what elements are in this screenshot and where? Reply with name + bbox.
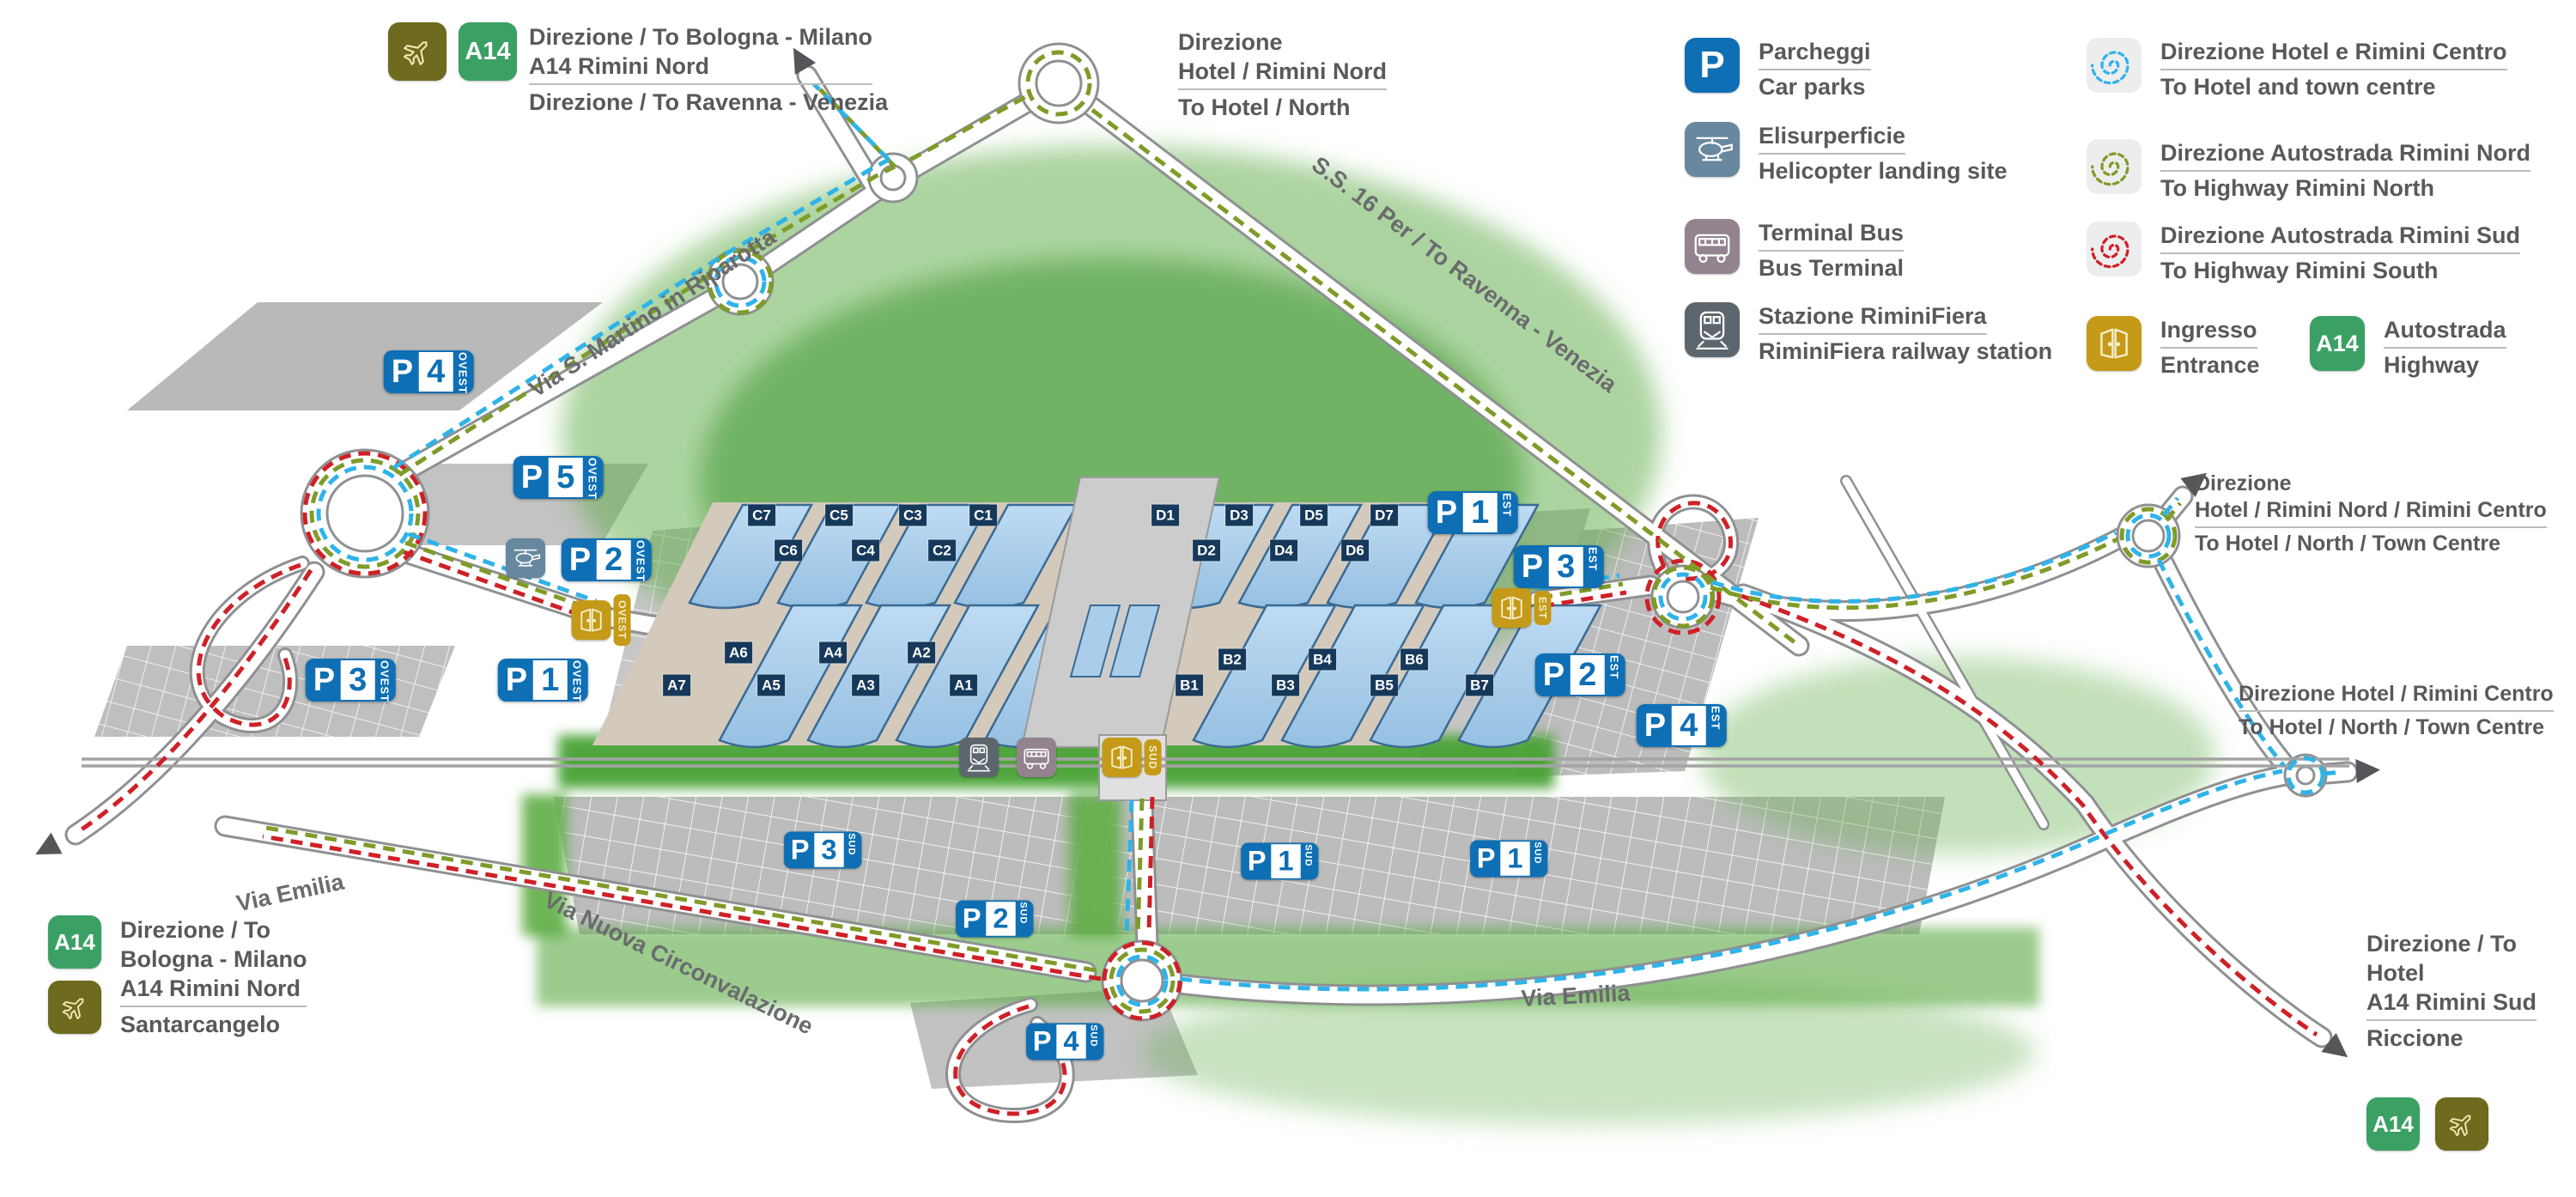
legend-label-en: Entrance <box>2160 351 2260 380</box>
legend-row-autostrada: A14 Autostrada Highway <box>2310 316 2506 380</box>
p-area: EST <box>1607 655 1620 695</box>
p-area: OVEST <box>456 352 469 392</box>
p-letter: P <box>386 355 419 388</box>
legend-row-autostrada-sud: Direzione Autostrada Rimini Sud To Highw… <box>2087 222 2520 285</box>
p-letter: P <box>1516 550 1549 583</box>
railway-station-marker-icon <box>959 738 999 777</box>
p-area: OVEST <box>570 660 583 700</box>
dir-line: Hotel / Rimini Nord / Rimini Centro <box>2195 497 2547 528</box>
dir-block-right-upper: Direzione Hotel / Rimini Nord / Rimini C… <box>2195 471 2547 557</box>
p-letter: P <box>957 905 987 933</box>
hall-label: D2 <box>1193 540 1220 562</box>
arrow-hotel-centro-icon <box>2355 758 2380 783</box>
legend-label-en: To Highway Rimini South <box>2160 257 2520 285</box>
helipad-marker-icon <box>506 538 545 578</box>
p-area: SUD <box>847 833 858 867</box>
dir-top-left-text: Direzione / To Bologna - Milano A14 Rimi… <box>529 22 888 117</box>
hall-label: D6 <box>1341 540 1369 562</box>
hall-label: B2 <box>1218 649 1246 671</box>
p-number: 5 <box>549 458 582 497</box>
airport-icon <box>388 22 447 81</box>
legend-row-elisurperficie: Elisurperficie Helicopter landing site <box>1685 122 2008 185</box>
p-area: EST <box>1500 493 1513 532</box>
legend-label-it: Direzione Autostrada Rimini Sud <box>2160 222 2520 254</box>
legend-label-it: Elisurperficie <box>1759 122 1905 155</box>
parking-sign-p3-ovest: P 3 OVEST <box>306 659 396 702</box>
hall-label: C6 <box>775 540 802 562</box>
dir-line: To Hotel / North / Town Centre <box>2239 714 2554 741</box>
p-letter: P <box>1430 496 1463 529</box>
p-number: 3 <box>341 660 374 700</box>
p-letter: P <box>500 664 533 696</box>
road-label-via-emilia-east: Via Emilia <box>1521 980 1631 1012</box>
legend-label-it: Ingresso <box>2160 316 2257 349</box>
spiral-red-icon <box>2087 222 2142 276</box>
dir-line: Direzione / To Hotel A14 Rimini Sud <box>2366 929 2537 1021</box>
airport-icon <box>2435 1097 2488 1151</box>
p-area: EST <box>1709 706 1722 745</box>
legend-label-en: To Highway Rimini North <box>2160 174 2530 203</box>
dir-line: Santarcangelo <box>120 1010 307 1039</box>
p-area: EST <box>1586 547 1599 586</box>
dir-line: Direzione Hotel / Rimini Centro <box>2239 681 2554 712</box>
legend-label-en: RiminiFiera railway station <box>1759 337 2052 366</box>
p-area: SUD <box>1533 842 1544 876</box>
a14-badge: A14 <box>2366 1097 2420 1151</box>
p-number: 4 <box>419 352 453 392</box>
parking-sign-p4-est: P 4 EST <box>1637 704 1727 747</box>
p-number: 1 <box>533 660 567 700</box>
a14-badge: A14 <box>459 22 517 81</box>
hall-label: A6 <box>725 642 752 664</box>
parking-sign-p1-est: P 1 EST <box>1428 491 1518 534</box>
p-letter: P <box>1242 848 1272 876</box>
dir-block-top-left: A14 Direzione / To Bologna - Milano A14 … <box>388 22 888 117</box>
legend-label-it: Terminal Bus <box>1759 219 1904 252</box>
legend-label-en: To Hotel and town centre <box>2160 73 2507 101</box>
p-number: 4 <box>1672 706 1705 745</box>
legend-row-hotel-centro: Direzione Hotel e Rimini Centro To Hotel… <box>2087 38 2507 101</box>
legend-label-it: Direzione Hotel e Rimini Centro <box>2160 38 2507 70</box>
p-area: SUD <box>1303 844 1315 878</box>
entrance-icon <box>572 600 611 640</box>
hall-label: D1 <box>1151 505 1179 526</box>
legend-row-stazione: Stazione RiminiFiera RiminiFiera railway… <box>1685 302 2052 366</box>
p-number: 2 <box>597 540 630 580</box>
p-number: 3 <box>1549 547 1583 586</box>
p-letter: P <box>563 544 597 576</box>
p-number: 1 <box>1463 493 1497 532</box>
dir-line: Direzione <box>1178 27 1387 57</box>
p-area: OVEST <box>634 540 647 580</box>
train-icon <box>1685 302 1740 357</box>
hall-label: C2 <box>928 540 956 562</box>
a14-badge: A14 <box>2310 316 2365 371</box>
p-area: SUD <box>1089 1024 1100 1059</box>
parking-sign-p1-sud-2: P 1 SUD <box>1470 841 1547 878</box>
legend-row-parcheggi: P Parcheggi Car parks <box>1685 38 1871 101</box>
dir-line: To Hotel / North <box>1178 93 1387 122</box>
dir-line: Direzione / To Bologna - Milano A14 Rimi… <box>529 22 872 85</box>
hall-label: C7 <box>748 505 775 526</box>
p-number: 2 <box>987 902 1016 936</box>
p-letter: P <box>786 836 815 865</box>
legend-label-en: Car parks <box>1759 73 1871 101</box>
dir-bottom-left-text: Direzione / To Bologna - Milano A14 Rimi… <box>120 915 307 1039</box>
hall-label: C3 <box>899 505 927 526</box>
hall-label: A1 <box>950 675 977 696</box>
legend-label-en: Highway <box>2384 351 2506 380</box>
hall-label: D7 <box>1370 505 1398 526</box>
entrance-area-label: OVEST <box>614 594 631 646</box>
parking-sign-p2-ovest: P 2 OVEST <box>562 538 652 581</box>
legend-label-it: Parcheggi <box>1759 38 1871 70</box>
parking-icon: P <box>1685 38 1740 93</box>
entrance-icon <box>1103 738 1142 777</box>
p-area: OVEST <box>378 660 391 700</box>
dir-line: Riccione <box>2366 1024 2537 1053</box>
dir-bottom-right-icons: A14 <box>2366 1097 2488 1151</box>
legend-row-terminal-bus: Terminal Bus Bus Terminal <box>1685 219 1904 283</box>
p-letter: P <box>1028 1028 1057 1056</box>
dir-block-bottom-right: Direzione / To Hotel A14 Rimini Sud Ricc… <box>2366 929 2537 1053</box>
hall-label: B1 <box>1176 675 1203 696</box>
arrow-bologna-icon <box>30 833 63 866</box>
bus-icon <box>1685 219 1740 274</box>
dir-line: Direzione / To Ravenna - Venezia <box>529 88 888 117</box>
entrance-ovest: OVEST <box>572 594 631 646</box>
dir-line: Direzione / To Bologna - Milano A14 Rimi… <box>120 915 307 1007</box>
p-letter: P <box>307 664 341 696</box>
parking-sign-p5-ovest: P 5 OVEST <box>513 456 604 499</box>
legend-label-it: Direzione Autostrada Rimini Nord <box>2160 139 2530 172</box>
p-area: OVEST <box>586 458 598 497</box>
parking-sign-p1-ovest: P 1 OVEST <box>498 659 588 702</box>
p-letter: P <box>1537 659 1571 691</box>
spiral-green-icon <box>2087 139 2142 194</box>
spiral-cyan-icon <box>2087 38 2142 93</box>
parking-sign-p4-ovest: P 4 OVEST <box>384 350 474 393</box>
hall-label: C4 <box>852 540 879 562</box>
legend-row-autostrada-nord: Direzione Autostrada Rimini Nord To High… <box>2087 139 2530 203</box>
hall-label: B7 <box>1466 675 1493 696</box>
p-letter: P <box>1472 845 1501 873</box>
legend-label-it: Autostrada <box>2384 316 2506 349</box>
entrance-area-label: EST <box>1534 591 1552 625</box>
parking-sign-p3-est: P 3 EST <box>1514 545 1604 588</box>
p-number: 1 <box>1501 842 1530 876</box>
parking-sign-p4-sud: P 4 SUD <box>1026 1024 1103 1060</box>
entrance-sud: SUD <box>1103 738 1162 777</box>
hall-label: D5 <box>1300 505 1327 526</box>
hall-label: A5 <box>757 675 785 696</box>
p-number: 2 <box>1571 655 1604 695</box>
entrance-est: EST <box>1492 588 1552 628</box>
dir-line: Hotel / Rimini Nord <box>1178 57 1387 90</box>
entrance-area-label: SUD <box>1145 739 1162 775</box>
p-letter: P <box>515 461 549 494</box>
parking-sign-p3-sud: P 3 SUD <box>784 832 861 869</box>
hall-label: C5 <box>825 505 853 526</box>
p-number: 4 <box>1057 1024 1086 1059</box>
hall-label: A7 <box>663 675 690 696</box>
hall-label: D4 <box>1270 540 1297 562</box>
bus-terminal-marker-icon <box>1017 738 1056 777</box>
airport-icon <box>48 981 101 1034</box>
dir-block-right-mid: Direzione Hotel / Rimini Centro To Hotel… <box>2239 681 2554 741</box>
a14-badge: A14 <box>48 915 101 969</box>
p-number: 1 <box>1272 844 1301 878</box>
parking-sign-p1-sud: P 1 SUD <box>1241 843 1318 880</box>
dir-block-bottom-left: A14 Direzione / To Bologna - Milano A14 … <box>48 915 307 1039</box>
p-number: 3 <box>815 833 844 867</box>
hall-label: B6 <box>1400 649 1428 671</box>
rimini-fiera-map: C7 C6 C5 C4 C3 C2 C1 D1 D2 D3 D4 D5 D6 D… <box>0 0 2576 1197</box>
hall-label: B3 <box>1272 675 1299 696</box>
dir-line: Direzione <box>2195 471 2547 497</box>
dir-block-top-center: Direzione Hotel / Rimini Nord To Hotel /… <box>1178 27 1387 122</box>
hall-label: A4 <box>819 642 847 664</box>
entrance-icon <box>2087 316 2142 371</box>
legend-label-en: Helicopter landing site <box>1759 157 2008 185</box>
hall-label: B4 <box>1309 649 1336 671</box>
parking-sign-p2-sud: P 2 SUD <box>956 901 1033 938</box>
parking-sign-p2-est: P 2 EST <box>1535 653 1625 696</box>
helicopter-icon <box>1685 122 1740 177</box>
legend-label-en: Bus Terminal <box>1759 254 1904 283</box>
legend-row-ingresso: Ingresso Entrance <box>2087 316 2260 380</box>
p-area: SUD <box>1018 902 1030 936</box>
legend-label-it: Stazione RiminiFiera <box>1759 302 1987 335</box>
hall-label: A3 <box>852 675 879 696</box>
hall-label: B5 <box>1370 675 1398 696</box>
entrance-icon <box>1492 588 1532 628</box>
dir-line: To Hotel / North / Town Centre <box>2195 531 2547 557</box>
hall-label: C1 <box>969 505 997 526</box>
p-letter: P <box>1638 709 1672 742</box>
hall-label: A2 <box>908 642 935 664</box>
hall-label: D3 <box>1225 505 1253 526</box>
